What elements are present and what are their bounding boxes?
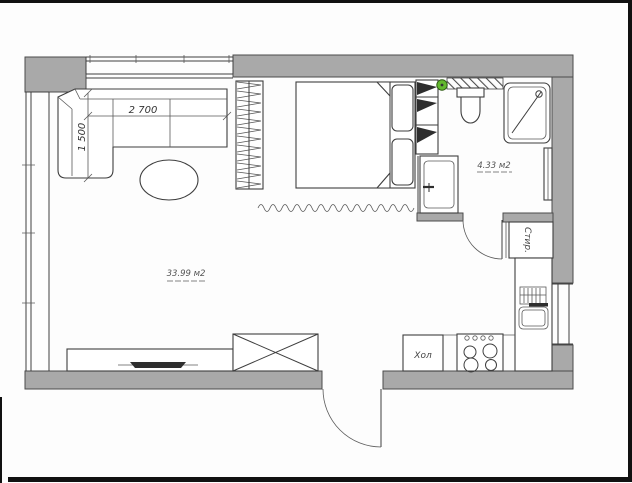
floor-plan: 2 700 1 500 33.99 м2 (0, 0, 632, 483)
bathroom-sink (420, 156, 458, 213)
fridge: Хол (403, 335, 443, 371)
wall-right-upper (552, 77, 573, 283)
shelf-unit (415, 80, 438, 154)
washing-machine-label: Стир. (522, 227, 532, 253)
wall-corner-block (25, 57, 86, 92)
svg-text:33.99 м2: 33.99 м2 (167, 269, 206, 279)
wall-bottom-left (25, 371, 322, 389)
storage-cabinet (233, 334, 318, 371)
double-bed (296, 82, 415, 188)
entrance-door (323, 389, 381, 447)
bathroom-door (463, 220, 502, 259)
curtain-divider (258, 205, 414, 212)
wall-bottom-right (383, 371, 573, 389)
svg-text:4.33 м2: 4.33 м2 (477, 161, 510, 171)
floor-plan-image: 2 700 1 500 33.99 м2 (0, 0, 632, 483)
window-top (86, 55, 233, 78)
window-left (22, 92, 49, 371)
kitchen-counter (515, 258, 552, 371)
towel-radiator (544, 148, 552, 200)
living-area-label: 33.99 м2 (167, 269, 206, 281)
toilet (457, 88, 484, 123)
stove (457, 334, 503, 372)
bathroom-area-label: 4.33 м2 (477, 161, 512, 172)
pillow (392, 85, 413, 131)
green-marker-dot (441, 84, 444, 87)
kitchen: Стир. Хол (403, 222, 553, 372)
wall-top (233, 55, 573, 77)
tv (130, 362, 186, 368)
fridge-label: Хол (413, 351, 432, 361)
dimension-length-text: 2 700 (129, 105, 158, 116)
demolition-hatch (447, 78, 503, 89)
pillow (392, 139, 413, 185)
dimension-depth-text: 1 500 (77, 123, 88, 152)
washing-machine: Стир. (506, 222, 553, 258)
wall-bathroom-kitchen (503, 213, 553, 222)
coffee-table (140, 160, 198, 200)
wall-bathroom-south (417, 213, 463, 221)
tv-stand (67, 349, 233, 371)
window-right (552, 284, 573, 344)
wardrobe (236, 81, 263, 189)
shower-cabin (504, 83, 550, 143)
